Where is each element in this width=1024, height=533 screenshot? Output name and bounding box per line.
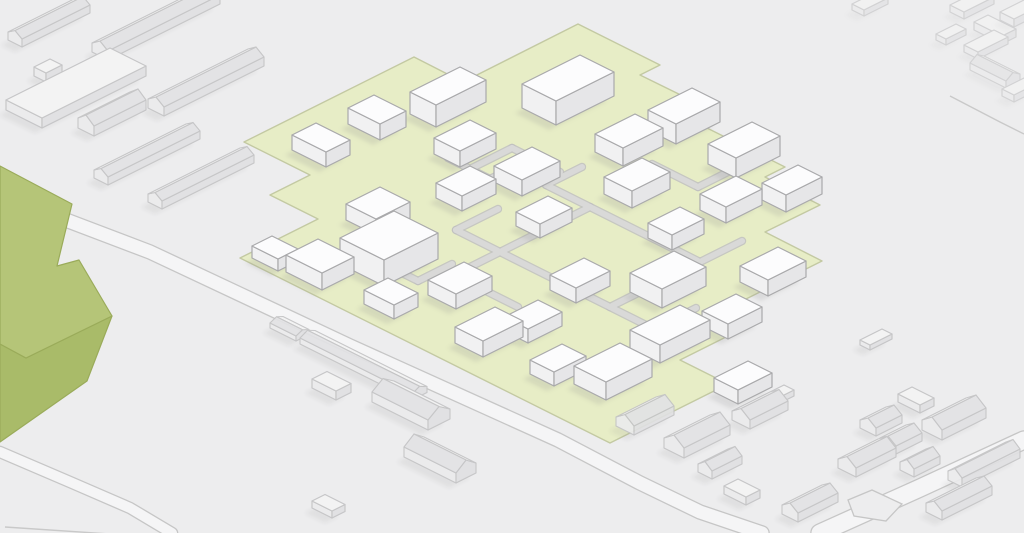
gabled-building <box>148 47 264 116</box>
road <box>0 452 172 533</box>
green-landmark-building <box>0 166 112 442</box>
roof-slope-front <box>156 47 264 107</box>
roof-slope-front <box>101 123 200 178</box>
building-box <box>936 24 966 45</box>
distant-buildings-layer <box>845 0 1024 107</box>
gabled-building <box>970 55 1020 89</box>
isometric-map-canvas <box>0 0 1024 533</box>
site-plan-illustration <box>0 0 1024 533</box>
gabled-building <box>782 483 838 522</box>
gabled-building <box>664 412 730 458</box>
road-edge-line <box>5 527 700 533</box>
gabled-building <box>8 0 90 47</box>
gabled-building <box>698 447 742 480</box>
building-box <box>860 329 892 350</box>
building-roof <box>860 329 892 345</box>
gabled-building <box>838 437 896 478</box>
